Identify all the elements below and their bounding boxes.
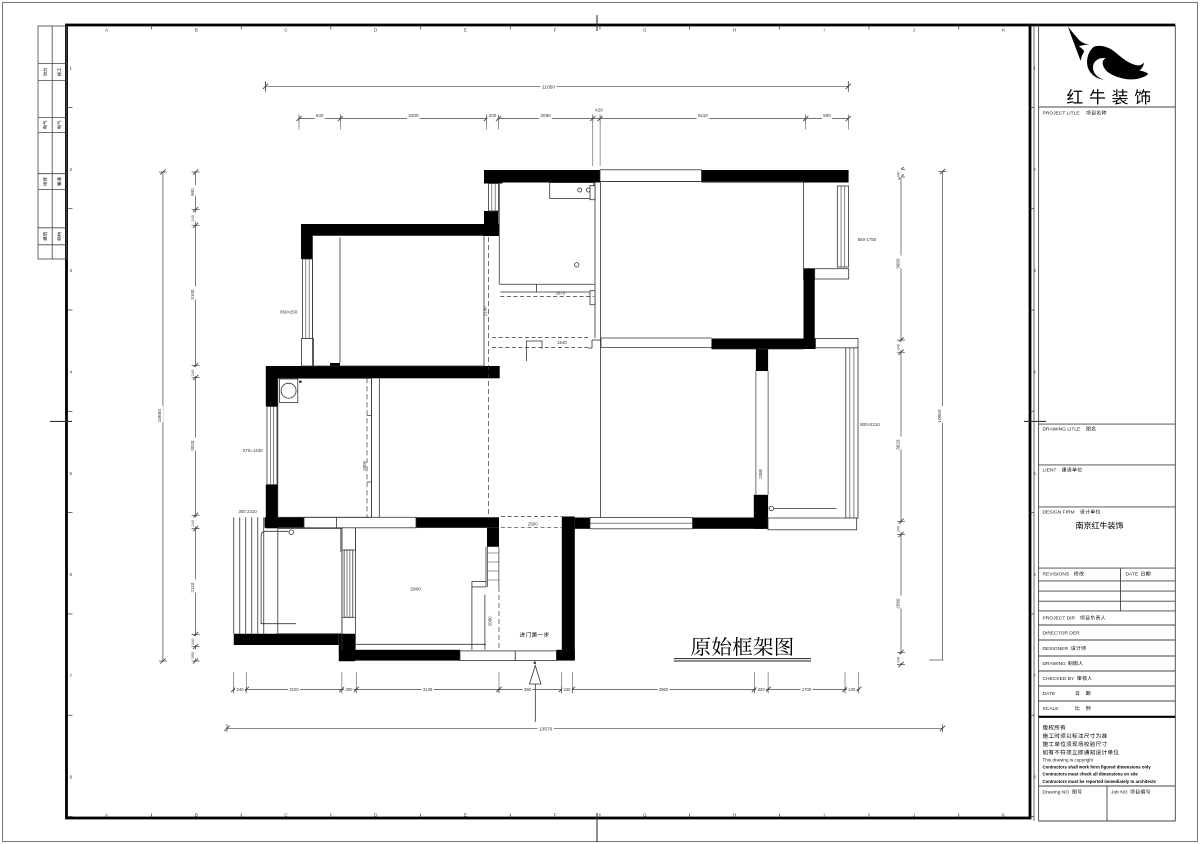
svg-text:3100: 3100 — [190, 289, 195, 300]
svg-text:900: 900 — [823, 113, 831, 118]
svg-text:3200: 3200 — [408, 113, 419, 118]
svg-text:220: 220 — [758, 687, 766, 692]
svg-text:13570: 13570 — [539, 726, 553, 732]
svg-text:B: B — [195, 812, 198, 817]
svg-text:REVISIONS: REVISIONS — [1043, 572, 1070, 578]
svg-text:2: 2 — [70, 167, 73, 172]
svg-text:I: I — [824, 812, 825, 817]
svg-text:800×2210: 800×2210 — [860, 422, 880, 427]
svg-text:11050: 11050 — [542, 84, 555, 90]
svg-text:10650: 10650 — [157, 409, 163, 423]
svg-text:3650: 3650 — [896, 258, 901, 269]
svg-text:Contractors must check all dim: Contractors must check all dimensions on… — [1043, 772, 1139, 777]
svg-text:200: 200 — [489, 113, 497, 118]
svg-text:670=1430: 670=1430 — [243, 448, 263, 453]
svg-text:DRAWING: DRAWING — [1043, 661, 1067, 667]
svg-text:1540: 1540 — [557, 340, 567, 345]
svg-text:420: 420 — [595, 108, 603, 113]
svg-text:2140: 2140 — [483, 306, 488, 316]
svg-text:1: 1 — [70, 66, 73, 71]
svg-text:DRAWING LITLE: DRAWING LITLE — [1043, 427, 1082, 433]
svg-text:J: J — [913, 28, 915, 33]
svg-text:1670: 1670 — [556, 291, 566, 296]
svg-text:DATE: DATE — [1126, 572, 1139, 578]
svg-text:2110: 2110 — [190, 582, 195, 592]
svg-text:Drawing NO: Drawing NO — [1043, 790, 1070, 796]
svg-text:650-1750: 650-1750 — [858, 237, 877, 242]
svg-text:240: 240 — [191, 520, 195, 526]
svg-text:240: 240 — [897, 344, 901, 350]
svg-text:Contractors shall work form fi: Contractors shall work form figured dime… — [1043, 765, 1152, 770]
svg-text:DIRECTOR DER: DIRECTOR DER — [1043, 631, 1081, 637]
svg-text:240: 240 — [191, 370, 195, 376]
svg-text:240: 240 — [191, 215, 195, 221]
svg-text:360: 360 — [524, 687, 532, 692]
svg-text:2580: 2580 — [488, 616, 493, 626]
svg-text:CHECKED BY: CHECKED BY — [1043, 676, 1076, 682]
svg-text:DESIGN FIRM: DESIGN FIRM — [1043, 510, 1075, 516]
svg-text:J: J — [913, 812, 915, 817]
svg-text:3: 3 — [70, 268, 73, 273]
svg-text:E: E — [464, 28, 467, 33]
svg-text:7: 7 — [70, 673, 73, 678]
svg-text:2560: 2560 — [896, 598, 901, 609]
svg-text:H: H — [733, 812, 736, 817]
svg-text:240: 240 — [897, 172, 901, 178]
svg-text:2080: 2080 — [540, 113, 551, 118]
svg-text:240: 240 — [848, 687, 856, 692]
svg-text:1700: 1700 — [802, 687, 812, 692]
svg-text:2900: 2900 — [410, 587, 421, 593]
svg-text:650×250: 650×250 — [280, 310, 298, 315]
svg-text:3020: 3020 — [190, 440, 195, 451]
svg-text:I: I — [824, 28, 825, 33]
svg-text:2500: 2500 — [362, 460, 367, 470]
svg-text:2960: 2960 — [659, 687, 669, 692]
svg-text:PROJECT DIR: PROJECT DIR — [1043, 616, 1076, 622]
svg-text:240: 240 — [191, 639, 195, 645]
svg-text:5110: 5110 — [698, 113, 708, 118]
svg-text:3620: 3620 — [896, 439, 901, 450]
svg-text:PROJECT LITLE: PROJECT LITLE — [1043, 111, 1081, 117]
svg-text:Job NO: Job NO — [1111, 790, 1128, 796]
svg-text:8: 8 — [70, 775, 73, 780]
svg-text:2380: 2380 — [758, 468, 763, 478]
svg-text:F: F — [554, 812, 557, 817]
svg-text:240: 240 — [897, 657, 901, 663]
svg-text:640: 640 — [316, 113, 324, 118]
svg-text:G: G — [643, 812, 647, 817]
svg-text:4: 4 — [70, 370, 73, 375]
svg-text:3130: 3130 — [423, 687, 433, 692]
svg-text:900: 900 — [190, 188, 195, 196]
svg-text:240: 240 — [237, 687, 245, 692]
svg-text:LIENT: LIENT — [1043, 468, 1057, 474]
svg-text:2500: 2500 — [528, 521, 538, 526]
svg-text:Contractors must be reported i: Contractors must be reported immediately… — [1043, 779, 1157, 784]
svg-text:2100: 2100 — [289, 687, 299, 692]
svg-text:6: 6 — [70, 572, 73, 577]
svg-text:240: 240 — [897, 526, 901, 532]
svg-text:This drawing is copyright: This drawing is copyright — [1043, 758, 1094, 763]
svg-text:H: H — [733, 28, 736, 33]
svg-text:B: B — [195, 28, 198, 33]
svg-text:F: F — [554, 28, 557, 33]
svg-text:10650: 10650 — [937, 409, 943, 423]
svg-text:DATE: DATE — [1043, 691, 1056, 697]
svg-text:240: 240 — [564, 687, 572, 692]
svg-text:G: G — [643, 28, 647, 33]
svg-text:300 2210: 300 2210 — [238, 509, 257, 514]
svg-text:300: 300 — [346, 687, 354, 692]
svg-text:SCALE: SCALE — [1043, 706, 1060, 712]
svg-text:5: 5 — [70, 471, 73, 476]
svg-text:DESIGNER: DESIGNER — [1043, 646, 1069, 652]
svg-text:E: E — [464, 812, 467, 817]
svg-text:550: 550 — [191, 652, 195, 658]
